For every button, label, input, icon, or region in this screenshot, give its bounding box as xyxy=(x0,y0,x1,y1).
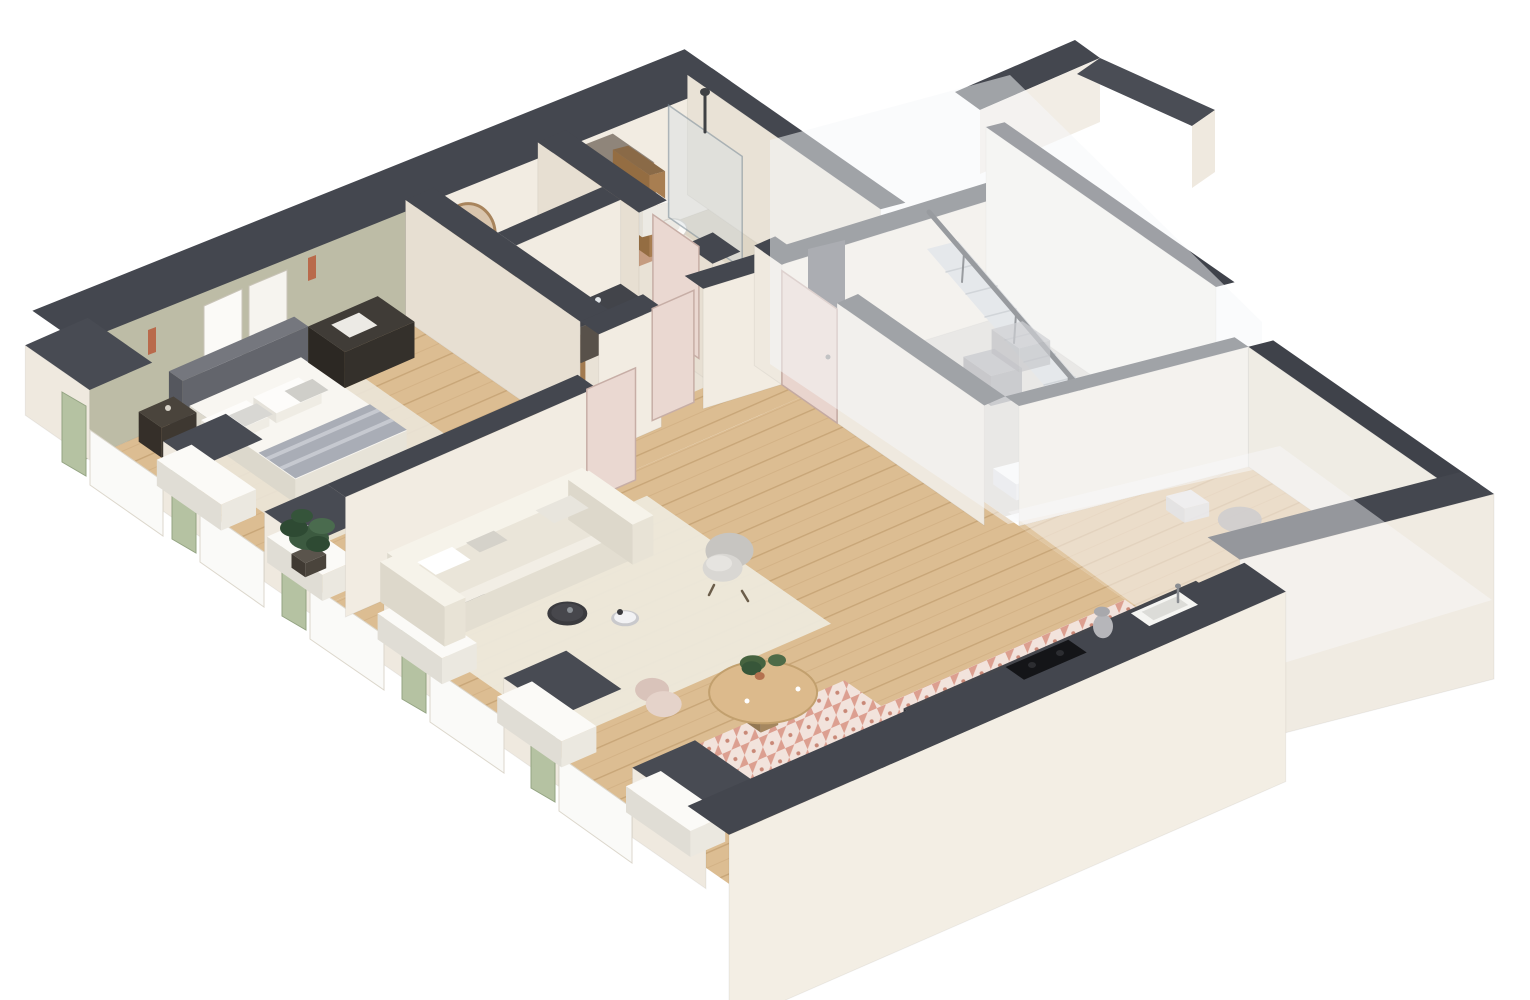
dining-table xyxy=(709,661,817,723)
stand-mixer xyxy=(1093,614,1113,638)
dining-chair-blush-seat xyxy=(646,691,682,717)
table-decor xyxy=(567,607,573,613)
scene-root xyxy=(25,40,1494,1000)
burner xyxy=(1028,662,1036,668)
nightstand-decor xyxy=(165,405,171,411)
wc-door xyxy=(652,290,694,420)
burner xyxy=(1056,650,1064,656)
wall-sconce xyxy=(308,255,316,281)
sink-faucet-head xyxy=(1175,584,1181,589)
armchair-cushion xyxy=(706,555,732,571)
stand-mixer-head xyxy=(1094,607,1110,617)
window-shutter xyxy=(62,392,86,476)
floorplan-canvas xyxy=(0,0,1530,1000)
table-plant-pot xyxy=(755,672,765,680)
cup xyxy=(745,699,750,704)
potted-plant-leaves xyxy=(291,509,313,523)
coffee-table-top xyxy=(551,604,583,622)
floorplan-image xyxy=(0,0,1530,1000)
wall-sconce xyxy=(148,327,156,355)
table-decor xyxy=(617,609,623,615)
table-plant-leaves xyxy=(768,654,786,666)
shower-head xyxy=(700,88,710,96)
potted-plant-leaves xyxy=(306,536,330,552)
potted-plant-leaves xyxy=(309,518,335,534)
cup xyxy=(796,687,801,692)
